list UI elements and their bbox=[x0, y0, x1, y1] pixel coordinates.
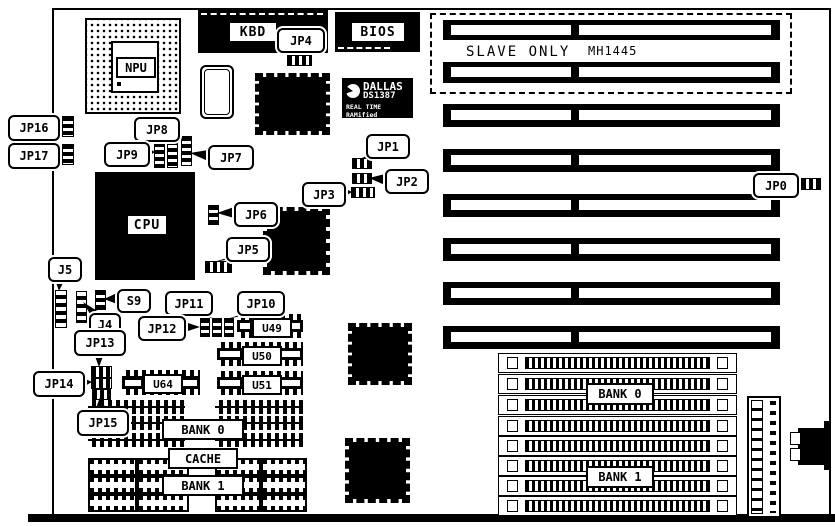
callout-jp9: JP9 bbox=[104, 142, 150, 167]
isa-slot-3 bbox=[443, 104, 780, 127]
ic-u64: U64 bbox=[122, 370, 200, 395]
callout-jp8: JP8 bbox=[134, 117, 180, 142]
callout-jp3: JP3 bbox=[302, 182, 346, 207]
isa-slot-1 bbox=[443, 20, 780, 40]
isa-slot-4 bbox=[443, 149, 780, 172]
dallas-rtc-chip: DALLAS DS1387 REAL TIME RAMified bbox=[342, 78, 413, 118]
cache-socket-row bbox=[215, 494, 261, 512]
jumper-jp16 bbox=[62, 116, 74, 137]
callout-jp1: JP1 bbox=[366, 134, 410, 159]
npu-socket: NPU bbox=[85, 18, 181, 114]
callout-jp14: JP14 bbox=[33, 371, 85, 397]
jumper-jp5 bbox=[205, 261, 232, 273]
callout-jp2: JP2 bbox=[385, 169, 429, 194]
jumper-s9 bbox=[95, 290, 106, 310]
isa-slot-6 bbox=[443, 238, 780, 261]
npu-pin1-mark bbox=[117, 82, 121, 86]
header-j4 bbox=[76, 291, 87, 323]
simm-slot-5 bbox=[498, 436, 737, 456]
callout-jp11: JP11 bbox=[165, 291, 213, 316]
kbd-chip-dash bbox=[201, 13, 323, 15]
callout-jp10: JP10 bbox=[237, 291, 285, 316]
callout-jp6: JP6 bbox=[234, 202, 278, 227]
qfp-chip-3 bbox=[348, 323, 412, 385]
cpu-label: CPU bbox=[128, 216, 166, 234]
power-connector bbox=[747, 396, 781, 518]
cache-socket-row bbox=[261, 476, 307, 494]
callout-jp7: JP7 bbox=[208, 145, 254, 170]
callout-jp0: JP0 bbox=[753, 173, 799, 198]
simm-bank1-label: BANK 1 bbox=[586, 466, 654, 488]
dallas-tagline: REAL TIME RAMified bbox=[346, 103, 409, 119]
jumper-jp17 bbox=[62, 144, 74, 165]
crystal-oscillator bbox=[200, 65, 234, 119]
callout-jp4: JP4 bbox=[277, 28, 325, 53]
jumper-jp12 bbox=[200, 318, 210, 337]
callout-s9: S9 bbox=[117, 289, 151, 313]
keyboard-connector bbox=[798, 428, 824, 465]
callout-jp15: JP15 bbox=[77, 410, 129, 436]
jumper-jp0 bbox=[801, 178, 821, 190]
qfp-chip-1 bbox=[255, 73, 330, 135]
jumper-jp8 bbox=[167, 140, 178, 168]
jumper-jp10 bbox=[224, 318, 234, 337]
cache-socket-row bbox=[261, 458, 307, 476]
cache-bank1-label: BANK 1 bbox=[162, 475, 244, 496]
callout-jp12: JP12 bbox=[138, 316, 186, 341]
callout-jp16: JP16 bbox=[8, 115, 60, 141]
jumper-jp6 bbox=[208, 205, 219, 225]
jumper-jp11 bbox=[212, 318, 222, 337]
cache-socket-row bbox=[88, 476, 137, 494]
u50-label: U50 bbox=[242, 346, 282, 366]
cache-socket-row bbox=[137, 494, 189, 512]
jumper-jp1 bbox=[352, 158, 372, 169]
isa-slot-2 bbox=[443, 62, 780, 83]
simm-slot-1 bbox=[498, 353, 737, 373]
ic-u51: U51 bbox=[217, 371, 303, 395]
header-j5 bbox=[55, 290, 67, 328]
kbd-label: KBD bbox=[230, 23, 276, 41]
motherboard-diagram: NPU KBD BIOS DALLAS DS1387 REAL TIME RAM… bbox=[0, 0, 835, 527]
cache-socket-row bbox=[88, 494, 137, 512]
bios-chip: BIOS bbox=[335, 12, 420, 52]
simm-slot-8 bbox=[498, 496, 737, 516]
callout-jp5: JP5 bbox=[226, 237, 270, 262]
isa-slot-5 bbox=[443, 194, 780, 217]
keyboard-connector-pin bbox=[790, 432, 801, 445]
cpu-chip: CPU bbox=[95, 172, 195, 280]
isa-slot-8 bbox=[443, 326, 780, 349]
jumper-jp7 bbox=[181, 136, 192, 166]
jumper-jp15 bbox=[92, 389, 111, 400]
callout-j5: J5 bbox=[48, 257, 82, 282]
keyboard-connector-pin bbox=[790, 448, 801, 461]
u49-label: U49 bbox=[252, 318, 292, 338]
u64-label: U64 bbox=[143, 374, 183, 394]
cache-bank0-label: BANK 0 bbox=[162, 419, 244, 440]
jumper-jp4 bbox=[287, 55, 312, 66]
jumper-jp13 bbox=[91, 366, 112, 378]
keyboard-connector-flange bbox=[824, 421, 831, 470]
jumper-jp3 bbox=[351, 187, 375, 198]
cache-label: CACHE bbox=[168, 448, 238, 469]
isa-slot-7 bbox=[443, 282, 780, 305]
qfp-chip-4 bbox=[345, 438, 410, 503]
board-part-number: MH1445 bbox=[588, 44, 637, 58]
bios-label: BIOS bbox=[352, 23, 404, 41]
jumper-jp14 bbox=[91, 378, 112, 389]
callout-jp13: JP13 bbox=[74, 330, 126, 356]
simm-bank0-label: BANK 0 bbox=[586, 383, 654, 405]
cache-socket-row bbox=[88, 458, 137, 476]
slave-only-text: SLAVE ONLY bbox=[466, 44, 570, 60]
u51-label: U51 bbox=[242, 375, 282, 395]
callout-jp17: JP17 bbox=[8, 143, 60, 169]
simm-slot-4 bbox=[498, 416, 737, 436]
ic-u49: U49 bbox=[237, 314, 303, 338]
jumper-jp2 bbox=[352, 173, 372, 184]
bios-chip-dash bbox=[338, 47, 390, 49]
npu-label: NPU bbox=[116, 57, 156, 78]
dallas-part: DS1387 bbox=[363, 92, 403, 101]
npu-socket-cavity: NPU bbox=[111, 41, 159, 93]
cache-socket-row bbox=[261, 494, 307, 512]
ic-u50: U50 bbox=[217, 342, 303, 366]
dallas-logo-icon bbox=[346, 84, 360, 98]
board-edge-top bbox=[52, 8, 831, 10]
jumper-jp9 bbox=[154, 142, 165, 168]
cache-chip-row bbox=[215, 400, 303, 414]
